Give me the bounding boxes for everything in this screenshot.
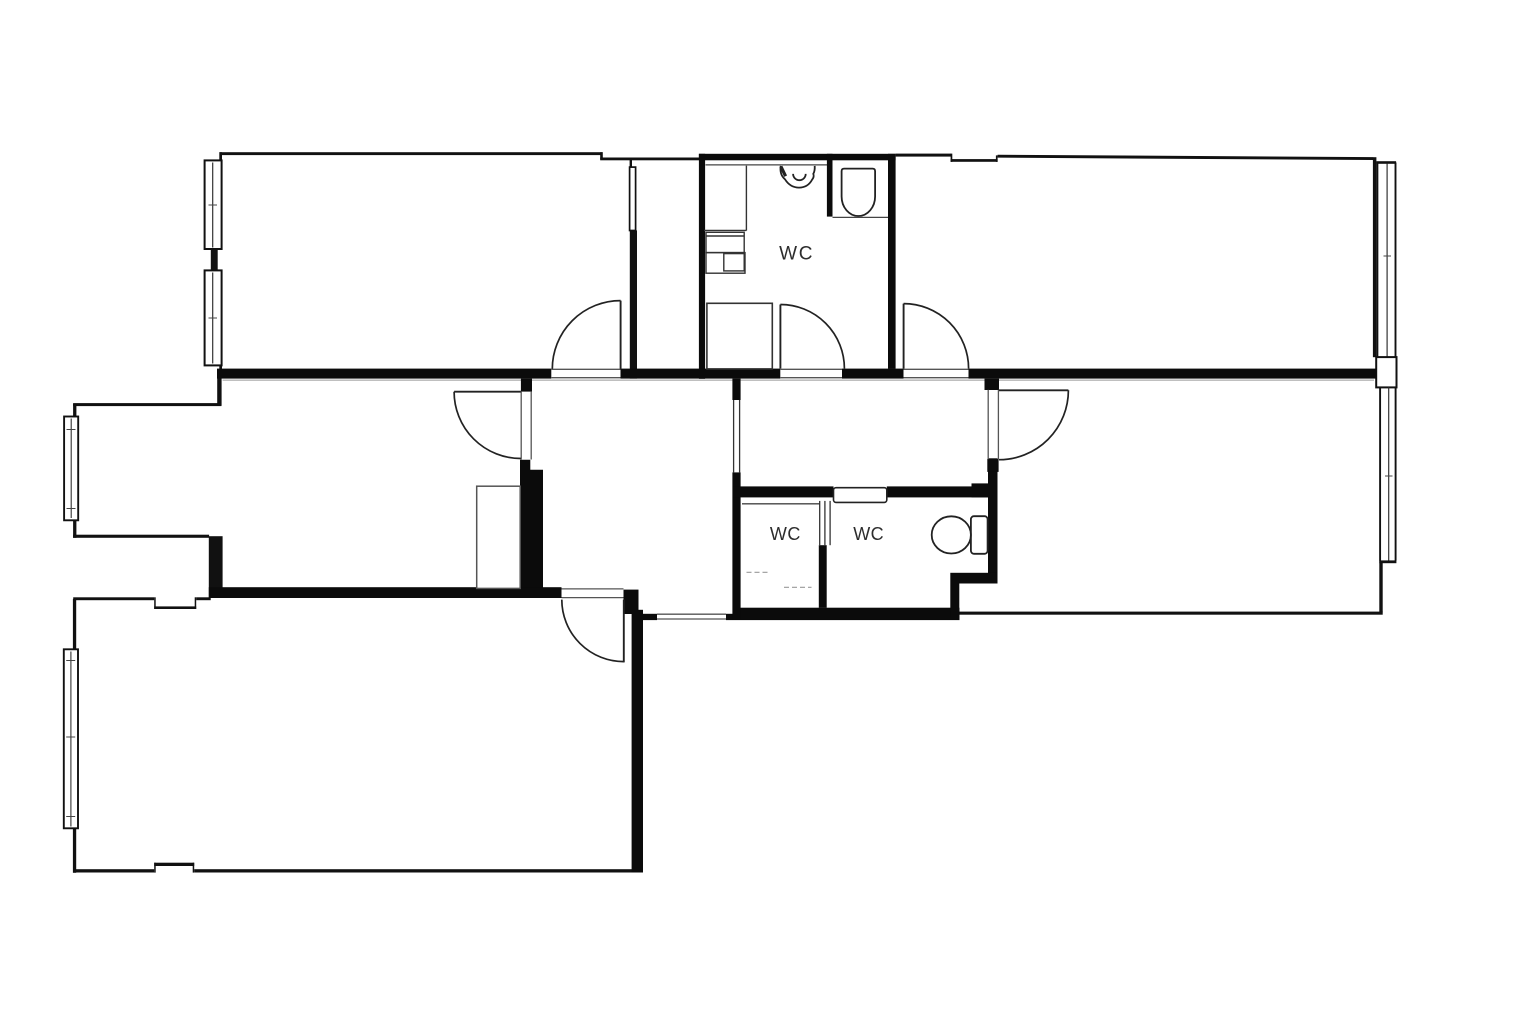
svg-text:WC: WC bbox=[779, 244, 814, 265]
svg-text:WC: WC bbox=[853, 524, 884, 544]
svg-text:WC: WC bbox=[770, 524, 801, 544]
